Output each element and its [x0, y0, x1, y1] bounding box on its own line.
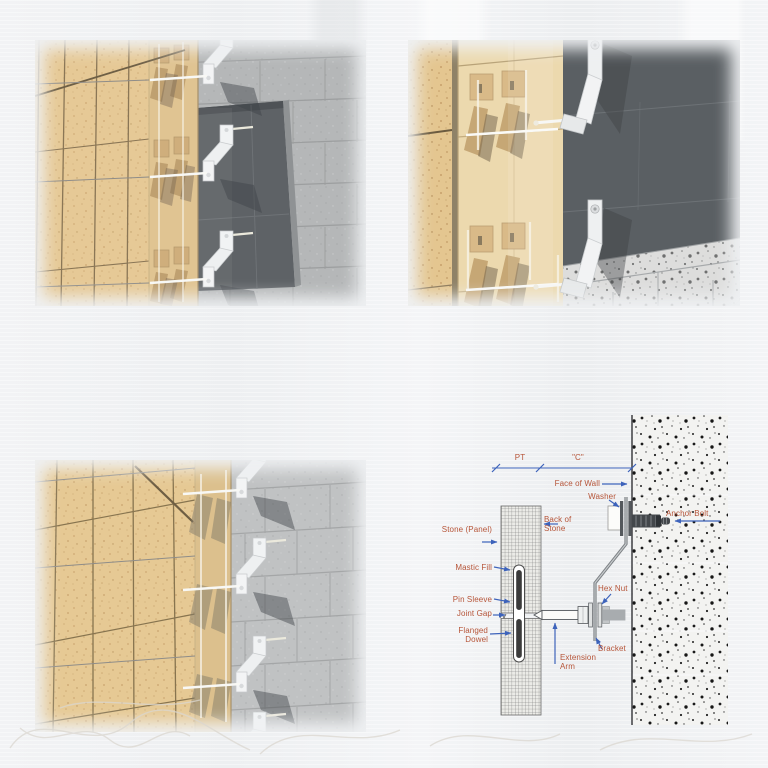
stone-anchor-isometric-illustration [35, 40, 366, 306]
stone-texture-edge [408, 40, 458, 306]
dimension-label-c: "C" [558, 453, 598, 462]
washer-assembly [608, 501, 632, 536]
catalog-page: PT "C" Face of Wall Washer Anchor Bolt B… [0, 0, 768, 768]
label-hex-nut: Hex Nut [598, 584, 642, 593]
label-washer: Washer [554, 492, 616, 501]
rendering-anchor-system-overview [35, 40, 366, 306]
light-reflection-band [508, 40, 553, 306]
panel-edge-column [189, 460, 231, 732]
stone-cladding-face [35, 460, 195, 732]
rendering-bracket-column [35, 460, 366, 732]
rendering-anchor-closeup [408, 40, 740, 306]
label-flanged-dowel: Flanged Dowel [438, 626, 488, 645]
stone-anchor-closeup-illustration [408, 40, 740, 306]
label-stone-panel: Stone (Panel) [436, 525, 492, 534]
extension-arm-assembly [534, 603, 625, 627]
label-extension-arm: Extension Arm [560, 653, 612, 672]
block-wall [231, 460, 366, 732]
stone-bracket-column-illustration [35, 460, 366, 732]
label-anchor-bolt: Anchor Bolt [666, 509, 726, 518]
label-joint-gap: Joint Gap [436, 609, 492, 618]
label-back-of-stone: Back of Stone [544, 515, 588, 534]
pin-sleeve-and-dowel [514, 565, 525, 662]
label-mastic-fill: Mastic Fill [436, 563, 492, 572]
dimension-line [492, 464, 636, 472]
label-pin-sleeve: Pin Sleeve [436, 595, 492, 604]
dimension-label-pt: PT [502, 453, 538, 462]
label-face-of-wall: Face of Wall [526, 479, 600, 488]
stone-cladding-face [35, 40, 149, 306]
anchor-section-diagram: PT "C" Face of Wall Washer Anchor Bolt B… [430, 413, 768, 768]
concrete-wall-section [632, 415, 728, 725]
